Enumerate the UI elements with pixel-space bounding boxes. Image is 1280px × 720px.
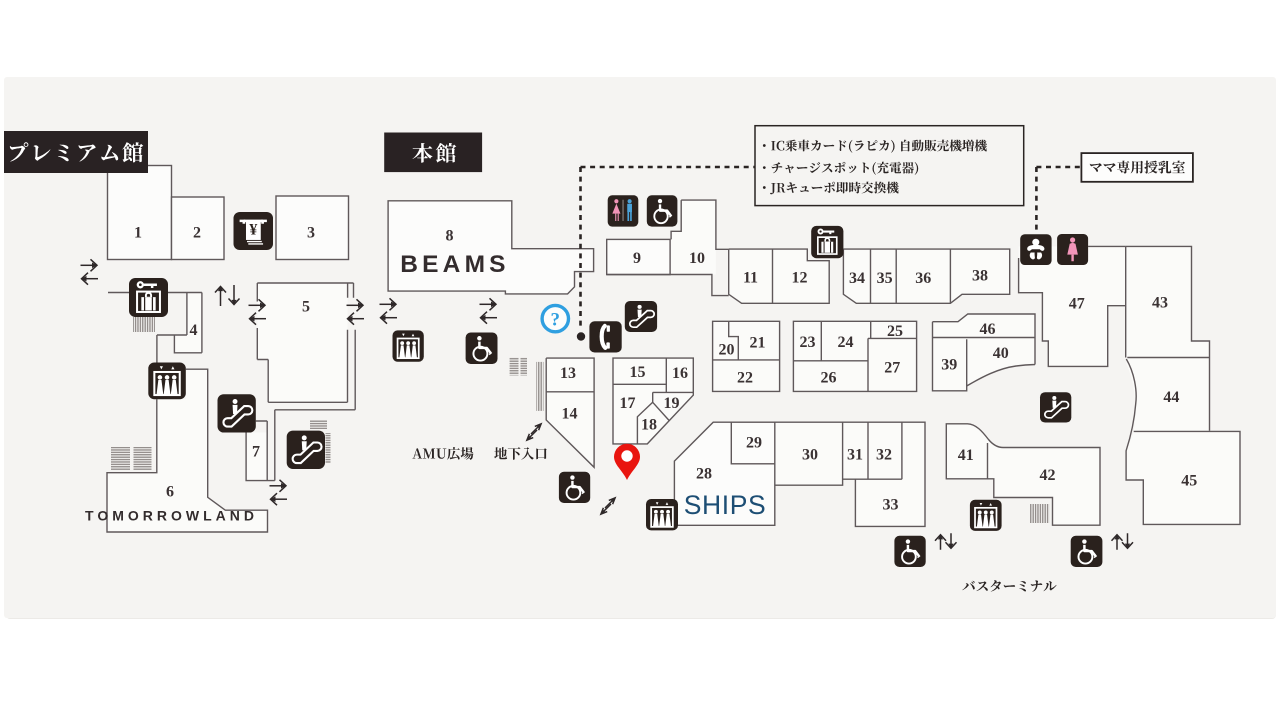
svg-text:35: 35 [877,270,893,287]
svg-text:29: 29 [746,435,762,452]
svg-text:5: 5 [302,299,310,316]
svg-text:14: 14 [562,406,578,423]
svg-text:43: 43 [1152,294,1168,311]
svg-text:32: 32 [876,447,892,464]
svg-text:3: 3 [307,225,315,242]
svg-text:8: 8 [446,228,454,245]
svg-text:45: 45 [1181,473,1197,490]
svg-text:16: 16 [672,365,688,382]
svg-text:34: 34 [849,270,865,287]
svg-text:17: 17 [620,395,636,412]
svg-text:39: 39 [941,357,957,374]
svg-text:TOMORROWLAND: TOMORROWLAND [85,508,258,524]
svg-text:13: 13 [560,365,576,382]
svg-text:21: 21 [750,335,766,352]
svg-text:30: 30 [802,447,818,464]
svg-text:BEAMS: BEAMS [400,251,509,278]
svg-text:40: 40 [993,345,1009,362]
svg-text:26: 26 [821,370,837,387]
svg-text:10: 10 [689,250,705,267]
svg-text:28: 28 [696,466,712,483]
svg-text:4: 4 [190,322,198,339]
svg-text:6: 6 [166,484,174,501]
svg-text:27: 27 [884,360,900,377]
svg-text:SHIPS: SHIPS [684,490,767,520]
svg-text:38: 38 [972,268,988,285]
svg-text:15: 15 [630,364,646,381]
svg-text:31: 31 [847,447,863,464]
svg-text:?: ? [551,310,561,331]
svg-text:47: 47 [1069,296,1085,313]
svg-text:36: 36 [915,270,931,287]
svg-text:42: 42 [1040,467,1056,484]
svg-text:23: 23 [800,334,816,351]
svg-text:18: 18 [641,417,657,434]
svg-text:9: 9 [633,250,641,267]
svg-text:20: 20 [719,342,735,359]
svg-text:24: 24 [838,334,854,351]
svg-text:19: 19 [664,395,680,412]
svg-text:25: 25 [887,323,903,340]
svg-text:41: 41 [958,447,974,464]
svg-text:2: 2 [193,225,201,242]
svg-text:1: 1 [134,225,142,242]
svg-text:46: 46 [980,321,996,338]
svg-text:11: 11 [743,270,758,287]
svg-text:12: 12 [792,270,808,287]
svg-text:44: 44 [1163,389,1179,406]
svg-text:22: 22 [737,370,753,387]
svg-text:33: 33 [883,497,899,514]
svg-text:7: 7 [252,444,260,461]
